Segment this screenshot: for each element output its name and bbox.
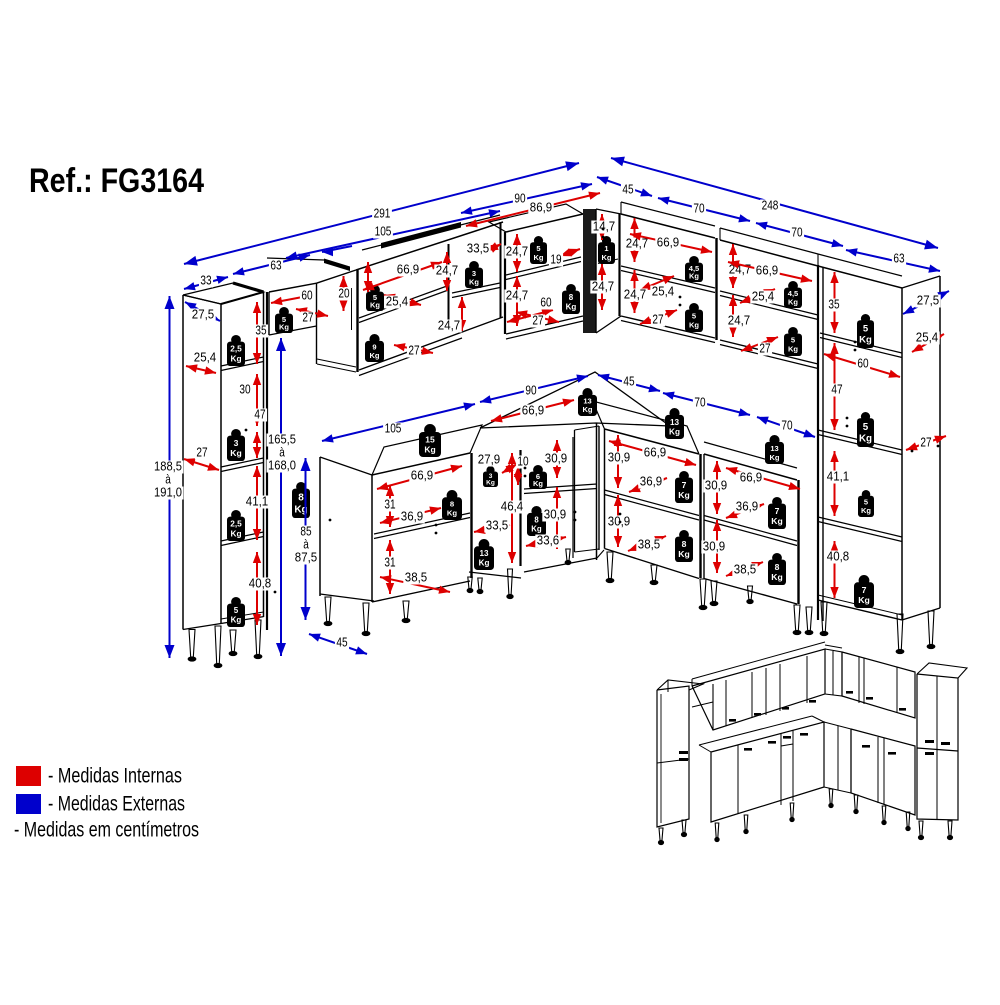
svg-text:Kg: Kg [771,516,782,526]
svg-text:24,7: 24,7 [506,287,528,302]
svg-text:66,9: 66,9 [657,234,679,249]
svg-text:- Medidas Internas: - Medidas Internas [48,765,182,788]
svg-text:Kg: Kg [231,616,242,625]
svg-text:66,9: 66,9 [522,402,544,417]
svg-text:7: 7 [682,480,687,490]
svg-text:Kg: Kg [602,253,612,262]
svg-text:19: 19 [550,251,561,266]
svg-text:35: 35 [828,296,839,311]
svg-text:27,5: 27,5 [192,306,214,321]
svg-text:5: 5 [863,422,869,433]
svg-text:15: 15 [425,434,435,444]
svg-text:8: 8 [775,562,780,572]
svg-text:24,7: 24,7 [592,278,614,293]
svg-text:Kg: Kg [669,427,680,436]
svg-text:33: 33 [200,272,211,287]
svg-text:30,9: 30,9 [608,513,630,528]
svg-text:8: 8 [569,293,574,302]
svg-text:168,0: 168,0 [268,457,296,472]
svg-text:Kg: Kg [230,448,241,458]
svg-text:24,7: 24,7 [506,243,528,258]
svg-text:45: 45 [336,634,347,649]
svg-text:41,1: 41,1 [827,468,849,483]
svg-text:46,4: 46,4 [501,498,523,513]
svg-text:5: 5 [536,244,540,253]
svg-text:86,9: 86,9 [530,199,552,214]
svg-text:8: 8 [450,500,455,509]
svg-text:87,5: 87,5 [295,549,317,564]
svg-text:Kg: Kg [689,272,699,281]
svg-text:38,5: 38,5 [638,536,660,551]
svg-text:Kg: Kg [230,353,241,363]
svg-text:66,9: 66,9 [644,444,666,459]
svg-text:60: 60 [857,355,868,370]
svg-text:27: 27 [532,312,543,327]
svg-text:27,9: 27,9 [478,451,500,466]
svg-text:25,4: 25,4 [386,293,408,308]
svg-text:24,7: 24,7 [438,317,460,332]
svg-text:33,5: 33,5 [467,240,489,255]
svg-text:60: 60 [540,294,551,309]
svg-text:30: 30 [239,381,250,396]
svg-text:8: 8 [534,515,539,524]
svg-text:Kg: Kg [424,444,435,454]
svg-text:66,9: 66,9 [756,262,778,277]
svg-text:36,9: 36,9 [640,473,662,488]
svg-text:24,7: 24,7 [436,262,458,277]
svg-text:Kg: Kg [788,297,798,306]
svg-text:Kg: Kg [486,479,495,486]
svg-text:Kg: Kg [230,528,241,538]
svg-text:63: 63 [893,250,904,265]
svg-text:2,5: 2,5 [230,344,242,354]
svg-text:60: 60 [301,287,312,302]
svg-text:3: 3 [234,438,239,448]
svg-text:27: 27 [196,444,207,459]
svg-text:31: 31 [384,496,395,511]
svg-text:70: 70 [693,200,704,215]
svg-text:66,9: 66,9 [411,467,433,482]
svg-text:Kg: Kg [678,549,689,559]
svg-text:45: 45 [623,373,634,388]
svg-text:- Medidas Externas: - Medidas Externas [48,793,185,816]
svg-text:Kg: Kg [583,405,593,414]
svg-text:25,4: 25,4 [752,288,774,303]
svg-text:291: 291 [374,205,391,220]
svg-text:105: 105 [385,420,402,435]
svg-text:Kg: Kg [859,335,872,346]
svg-text:13: 13 [770,444,778,453]
svg-text:47: 47 [254,406,265,421]
svg-text:Kg: Kg [858,595,870,605]
svg-text:30,9: 30,9 [703,538,725,553]
svg-text:8: 8 [682,539,687,549]
svg-text:24,7: 24,7 [728,312,750,327]
svg-text:47: 47 [831,381,842,396]
svg-text:5: 5 [234,606,239,615]
svg-text:Kg: Kg [279,323,289,332]
svg-text:27: 27 [759,340,770,355]
svg-text:27: 27 [302,309,313,324]
svg-text:30,9: 30,9 [608,449,630,464]
svg-text:41,1: 41,1 [246,493,268,508]
svg-text:Kg: Kg [689,321,699,330]
svg-text:38,5: 38,5 [405,569,427,584]
svg-text:33,5: 33,5 [486,517,508,532]
svg-text:7: 7 [862,585,867,595]
svg-text:36,9: 36,9 [401,508,423,523]
svg-text:Kg: Kg [788,345,798,354]
svg-text:25,4: 25,4 [194,349,216,364]
svg-text:66,9: 66,9 [397,261,419,276]
svg-text:20: 20 [338,285,349,300]
svg-text:7: 7 [775,506,780,516]
svg-text:Kg: Kg [479,559,490,568]
svg-text:Kg: Kg [861,506,871,515]
svg-text:2,5: 2,5 [230,519,242,529]
svg-text:66,9: 66,9 [740,469,762,484]
svg-text:35: 35 [255,322,266,337]
svg-text:70: 70 [781,417,792,432]
svg-text:Kg: Kg [447,509,458,518]
svg-text:30,9: 30,9 [545,450,567,465]
svg-text:27: 27 [920,434,931,449]
svg-text:90: 90 [514,190,525,205]
svg-text:30,9: 30,9 [544,506,566,521]
svg-text:27: 27 [408,342,419,357]
svg-text:Kg: Kg [370,301,380,310]
svg-text:105: 105 [375,223,392,238]
svg-text:38,5: 38,5 [734,561,756,576]
svg-text:Kg: Kg [859,433,872,444]
svg-text:90: 90 [525,382,536,397]
svg-text:70: 70 [694,394,705,409]
svg-text:40,8: 40,8 [827,548,849,563]
svg-text:Kg: Kg [770,453,780,462]
svg-text:33,6: 33,6 [537,532,559,547]
svg-text:36,9: 36,9 [736,498,758,513]
svg-text:27: 27 [652,311,663,326]
svg-text:248: 248 [762,197,779,212]
svg-text:45: 45 [622,181,633,196]
svg-text:27,5: 27,5 [917,292,939,307]
svg-text:Kg: Kg [678,490,689,500]
svg-text:Kg: Kg [534,253,544,262]
svg-text:191,0: 191,0 [154,484,182,499]
svg-text:Kg: Kg [566,303,577,312]
svg-text:10: 10 [517,453,528,468]
svg-text:63: 63 [270,257,281,272]
svg-text:13: 13 [479,549,489,558]
svg-text:8: 8 [298,493,304,504]
svg-text:1: 1 [604,244,608,253]
svg-text:30,9: 30,9 [705,477,727,492]
svg-text:24,7: 24,7 [624,286,646,301]
svg-text:Kg: Kg [370,351,380,360]
svg-text:25,4: 25,4 [652,283,674,298]
svg-text:13: 13 [670,418,680,427]
svg-text:14,7: 14,7 [593,218,615,233]
svg-text:Kg: Kg [533,479,543,488]
svg-text:25,4: 25,4 [916,329,938,344]
svg-text:Kg: Kg [469,277,479,286]
svg-text:70: 70 [791,224,802,239]
svg-text:Ref.: FG3164: Ref.: FG3164 [29,162,204,200]
svg-text:Kg: Kg [771,572,782,582]
svg-text:31: 31 [384,554,395,569]
svg-text:5: 5 [863,324,869,335]
svg-text:40,8: 40,8 [249,575,271,590]
svg-text:- Medidas em centímetros: - Medidas em centímetros [14,819,199,842]
